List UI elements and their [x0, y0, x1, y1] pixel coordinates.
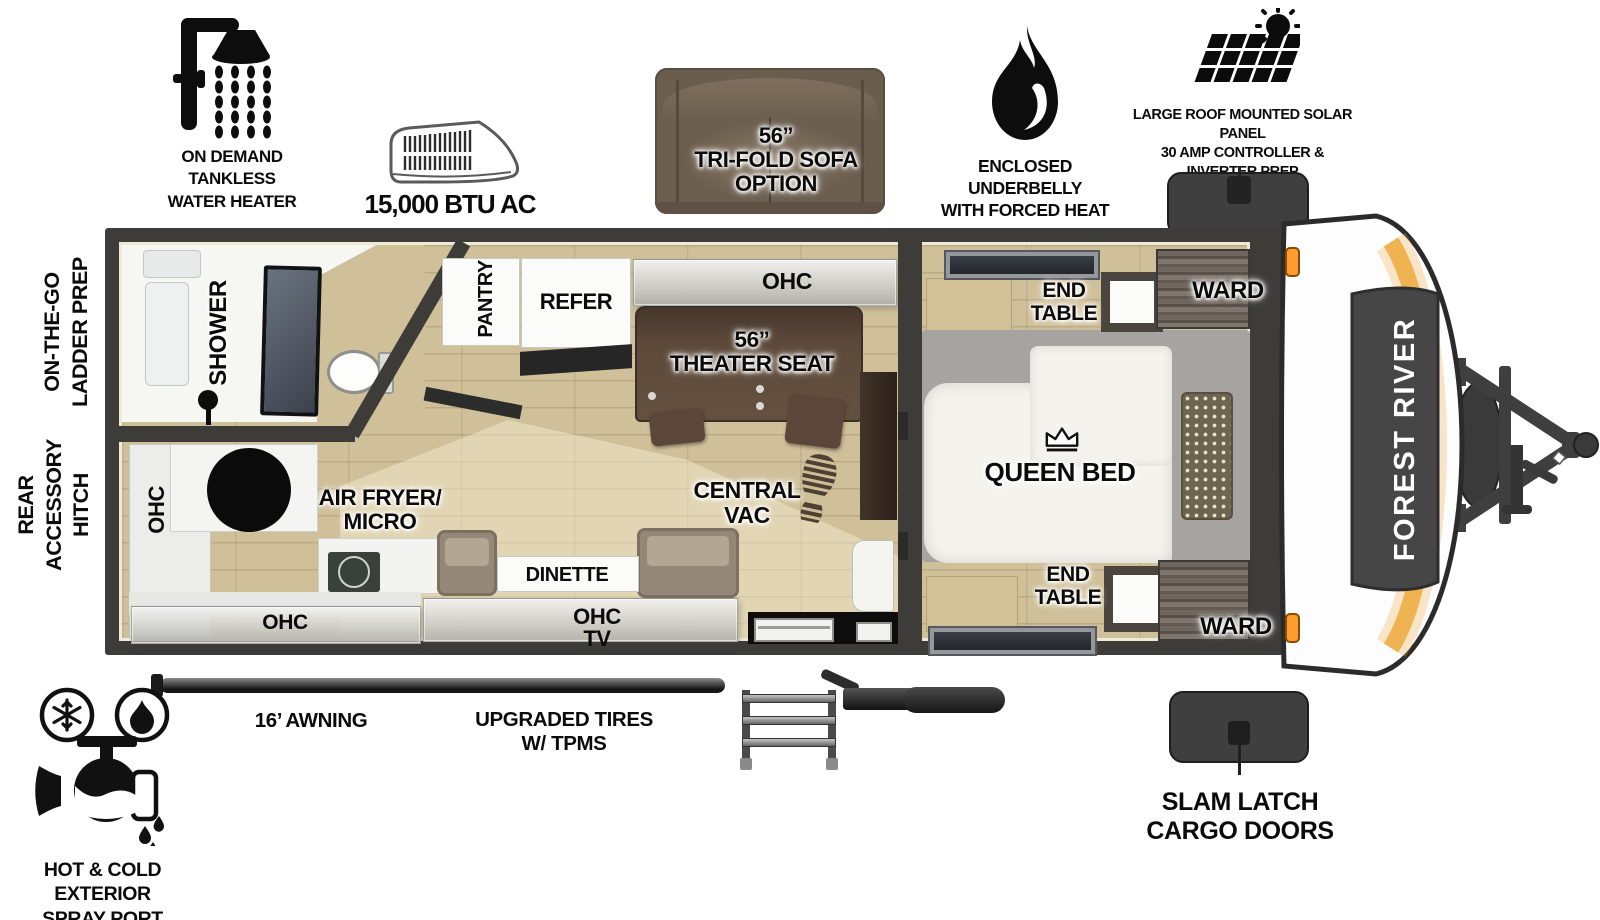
ac-unit-icon	[383, 118, 525, 186]
theater-ottoman-left	[648, 407, 705, 446]
solar-label: LARGE ROOF MOUNTED SOLAR PANEL 30 AMP CO…	[1130, 106, 1355, 181]
ladder-foot	[826, 758, 838, 770]
refer-label: REFER	[524, 290, 628, 314]
entry-step-ladder	[742, 690, 836, 770]
shower-label: SHOWER	[206, 258, 232, 408]
sofa-front-edge	[655, 202, 885, 214]
ladder-rung	[742, 694, 836, 703]
brand-text: FOREST RIVER	[1389, 317, 1421, 561]
awning-label: 16’ AWNING	[241, 710, 381, 732]
faucet-icon	[35, 736, 164, 846]
bedroom-wall	[898, 242, 922, 641]
bathroom-wall-bottom	[119, 426, 355, 442]
ohc-kitchen-side-label: OHC	[145, 465, 169, 555]
front-cap: FOREST RIVER	[1256, 202, 1600, 688]
bedroom-wall-hinge	[898, 412, 908, 440]
queen-bed-label: QUEEN BED	[970, 458, 1150, 486]
theater-ottoman-right	[784, 393, 846, 449]
flame-icon	[986, 26, 1066, 148]
cooktop-burner	[338, 556, 370, 588]
entry-step-inner-bar	[758, 626, 830, 629]
spray-port-icon	[25, 678, 175, 846]
bedroom-window-top	[946, 252, 1098, 278]
spray-port-label: HOT & COLD EXTERIOR SPRAY PORT	[0, 858, 205, 920]
ohc-galley-label: OHC	[737, 269, 837, 294]
bedroom-bench-top	[926, 278, 1012, 338]
ohc-kitchen-bottom-label: OHC	[235, 612, 335, 635]
theater-cupholder	[648, 392, 656, 400]
entry-step-inner	[754, 618, 834, 642]
underbelly-label: ENCLOSED UNDERBELLY WITH FORCED HEAT	[925, 156, 1125, 222]
cargo-doors-label: SLAM LATCH CARGO DOORS	[1130, 788, 1350, 846]
dinette-label: DINETTE	[515, 565, 619, 587]
hitch-crossbar	[1499, 366, 1511, 524]
rear-hitch-label: REAR ACCESSORY HITCH	[13, 425, 101, 585]
dinette-chair-right-cushion	[647, 536, 729, 566]
shower-stall	[260, 265, 322, 416]
bedroom-window-bottom	[930, 628, 1095, 654]
end-table-top-label: END TABLE	[1006, 280, 1122, 325]
shower-icon	[173, 12, 288, 144]
theater-cupholder	[756, 385, 764, 393]
jack-foot	[1502, 505, 1532, 514]
pantry-label: PANTRY	[476, 251, 498, 347]
sofa-option-label: 56” TRI-FOLD SOFA OPTION	[676, 124, 876, 195]
marker-light-bottom	[1286, 614, 1299, 642]
cargo-latch-cable	[1238, 743, 1241, 775]
cargo-latch-stem	[1238, 166, 1241, 176]
rv-floorplan-diagram: ON DEMAND TANKLESS WATER HEATER 15,000 B…	[0, 0, 1600, 920]
tongue-jack	[1511, 445, 1523, 507]
ac-label: 15,000 BTU AC	[350, 190, 550, 218]
ladder-rung	[742, 738, 836, 747]
cargo-latch-icon	[1228, 721, 1250, 745]
coupler-ball	[1574, 433, 1598, 457]
dinette-chair-left-cushion	[445, 538, 489, 566]
fold-step	[903, 687, 1005, 713]
solar-panel-icon	[1186, 8, 1300, 100]
bedroom-bench-bottom	[926, 576, 1018, 632]
water-heater-label: ON DEMAND TANKLESS WATER HEATER	[142, 146, 322, 213]
kitchen-sink	[207, 448, 291, 532]
ohc-tv-label: OHC TV	[545, 606, 649, 650]
theater-seat-label: 56” THEATER SEAT	[657, 328, 847, 377]
bathroom-cabinet	[145, 282, 189, 386]
door-side-cabinet	[852, 540, 894, 612]
bathroom-vanity	[143, 250, 201, 278]
awning-rail	[160, 678, 725, 693]
shower-head-stem	[206, 408, 211, 425]
bed-headboard-rattan	[1181, 392, 1233, 520]
ladder-rung	[742, 716, 836, 725]
cargo-latch-icon	[1227, 176, 1251, 204]
cargo-door-bottom	[1169, 691, 1309, 763]
end-table-bottom-label: END TABLE	[1010, 564, 1126, 609]
entry-step-inner-small	[856, 622, 892, 642]
marker-light-top	[1286, 248, 1299, 276]
ladder-prep-label: ON-THE-GO LADDER PREP	[39, 237, 97, 427]
bedroom-wall-hinge	[898, 532, 908, 560]
ladder-foot	[740, 758, 752, 770]
tv-cabinet-slab	[860, 372, 897, 520]
theater-cupholder	[756, 402, 764, 410]
central-vac-label: CENTRAL VAC	[672, 478, 822, 528]
air-fryer-label: AIR FRYER/ MICRO	[298, 486, 462, 535]
crown-icon	[1043, 426, 1081, 454]
tires-label: UPGRADED TIRES W/ TPMS	[468, 708, 660, 756]
